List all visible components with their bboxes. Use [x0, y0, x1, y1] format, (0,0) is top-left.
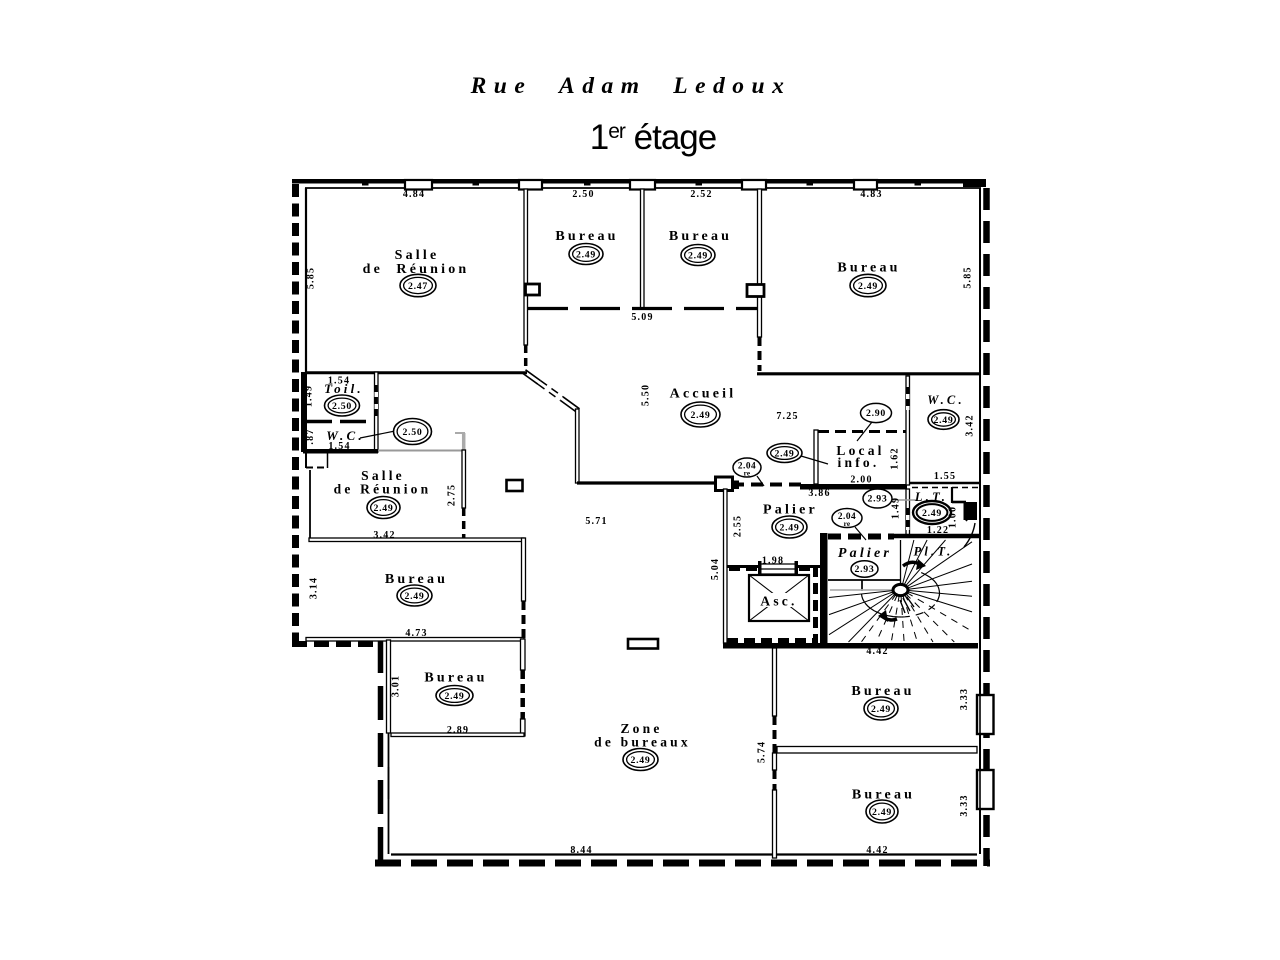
svg-text:8.44: 8.44: [570, 845, 592, 856]
svg-text:2.00: 2.00: [850, 475, 872, 486]
svg-text:4.73: 4.73: [405, 628, 427, 639]
svg-text:1.98: 1.98: [762, 556, 784, 567]
svg-text:1.49: 1.49: [891, 497, 902, 519]
svg-text:2.89: 2.89: [447, 725, 469, 736]
svg-text:5.09: 5.09: [631, 312, 653, 323]
svg-text:Salle: Salle: [395, 248, 440, 263]
svg-text:4.42: 4.42: [866, 646, 888, 657]
svg-text:5.04: 5.04: [710, 558, 721, 580]
svg-text:Bureau: Bureau: [555, 229, 618, 244]
svg-text:5.85: 5.85: [306, 267, 317, 289]
svg-text:W.C.: W.C.: [927, 393, 965, 407]
svg-text:4.84: 4.84: [403, 189, 425, 200]
svg-text:Bureau: Bureau: [424, 671, 487, 686]
svg-text:5.71: 5.71: [585, 516, 607, 527]
svg-text:5.85: 5.85: [963, 266, 974, 288]
svg-text:2.49: 2.49: [775, 448, 795, 459]
svg-text:3.01: 3.01: [391, 675, 402, 697]
svg-text:2.49: 2.49: [405, 591, 425, 602]
svg-text:Pl.T.: Pl.T.: [914, 545, 954, 559]
svg-text:.87: .87: [305, 428, 316, 444]
svg-text:3.86: 3.86: [808, 488, 830, 499]
svg-text:1.54: 1.54: [328, 441, 350, 452]
svg-text:2.49: 2.49: [374, 503, 394, 514]
svg-text:2.49: 2.49: [631, 755, 651, 766]
svg-text:5.50: 5.50: [641, 384, 652, 406]
svg-text:3.33: 3.33: [959, 794, 970, 816]
svg-text:2.50: 2.50: [572, 189, 594, 200]
svg-text:de Réunion: de Réunion: [334, 482, 432, 497]
svg-text:Asc.: Asc.: [760, 594, 797, 609]
svg-text:2.49: 2.49: [576, 249, 596, 260]
svg-text:4.83: 4.83: [860, 189, 882, 200]
svg-text:2.49: 2.49: [691, 410, 711, 421]
svg-text:2.49: 2.49: [871, 704, 891, 715]
svg-text:2.75: 2.75: [447, 484, 458, 506]
svg-text:2.49: 2.49: [688, 250, 708, 261]
svg-text:2.49: 2.49: [445, 691, 465, 702]
svg-text:2.50: 2.50: [403, 427, 423, 438]
svg-text:2.93: 2.93: [868, 494, 888, 505]
svg-text:2.52: 2.52: [690, 189, 712, 200]
svg-text:2.93: 2.93: [855, 564, 875, 575]
svg-text:1.62: 1.62: [890, 447, 901, 469]
svg-text:2.49: 2.49: [922, 508, 942, 519]
svg-text:1.49: 1.49: [304, 385, 315, 407]
svg-text:2.55: 2.55: [733, 515, 744, 537]
svg-text:5.74: 5.74: [757, 741, 768, 763]
svg-text:2.47: 2.47: [408, 281, 428, 292]
svg-text:info.: info.: [838, 455, 880, 470]
svg-text:2.49: 2.49: [872, 807, 892, 818]
svg-text:3.33: 3.33: [959, 688, 970, 710]
svg-text:1.22: 1.22: [927, 525, 949, 536]
svg-text:de bureaux: de bureaux: [594, 735, 691, 750]
svg-text:3.14: 3.14: [309, 577, 320, 599]
svg-text:2.49: 2.49: [780, 522, 800, 533]
svg-text:3.42: 3.42: [373, 530, 395, 541]
svg-text:1.55: 1.55: [934, 471, 956, 482]
svg-text:re: re: [744, 470, 751, 478]
svg-text:1.54: 1.54: [328, 376, 350, 387]
svg-text:Bureau: Bureau: [837, 261, 900, 276]
svg-text:4.42: 4.42: [866, 845, 888, 856]
svg-text:2.90: 2.90: [866, 408, 886, 419]
svg-text:Rue Adam Ledoux: Rue Adam Ledoux: [470, 73, 792, 99]
svg-text:2.49: 2.49: [858, 281, 878, 292]
svg-text:2.50: 2.50: [332, 401, 352, 412]
svg-text:2.49: 2.49: [934, 415, 954, 426]
svg-text:7.25: 7.25: [776, 411, 798, 422]
svg-text:3.42: 3.42: [965, 414, 976, 436]
svg-text:Palier: Palier: [838, 546, 892, 561]
svg-text:Accueil: Accueil: [670, 387, 737, 402]
svg-text:Bureau: Bureau: [669, 229, 732, 244]
svg-text:re: re: [844, 520, 851, 528]
